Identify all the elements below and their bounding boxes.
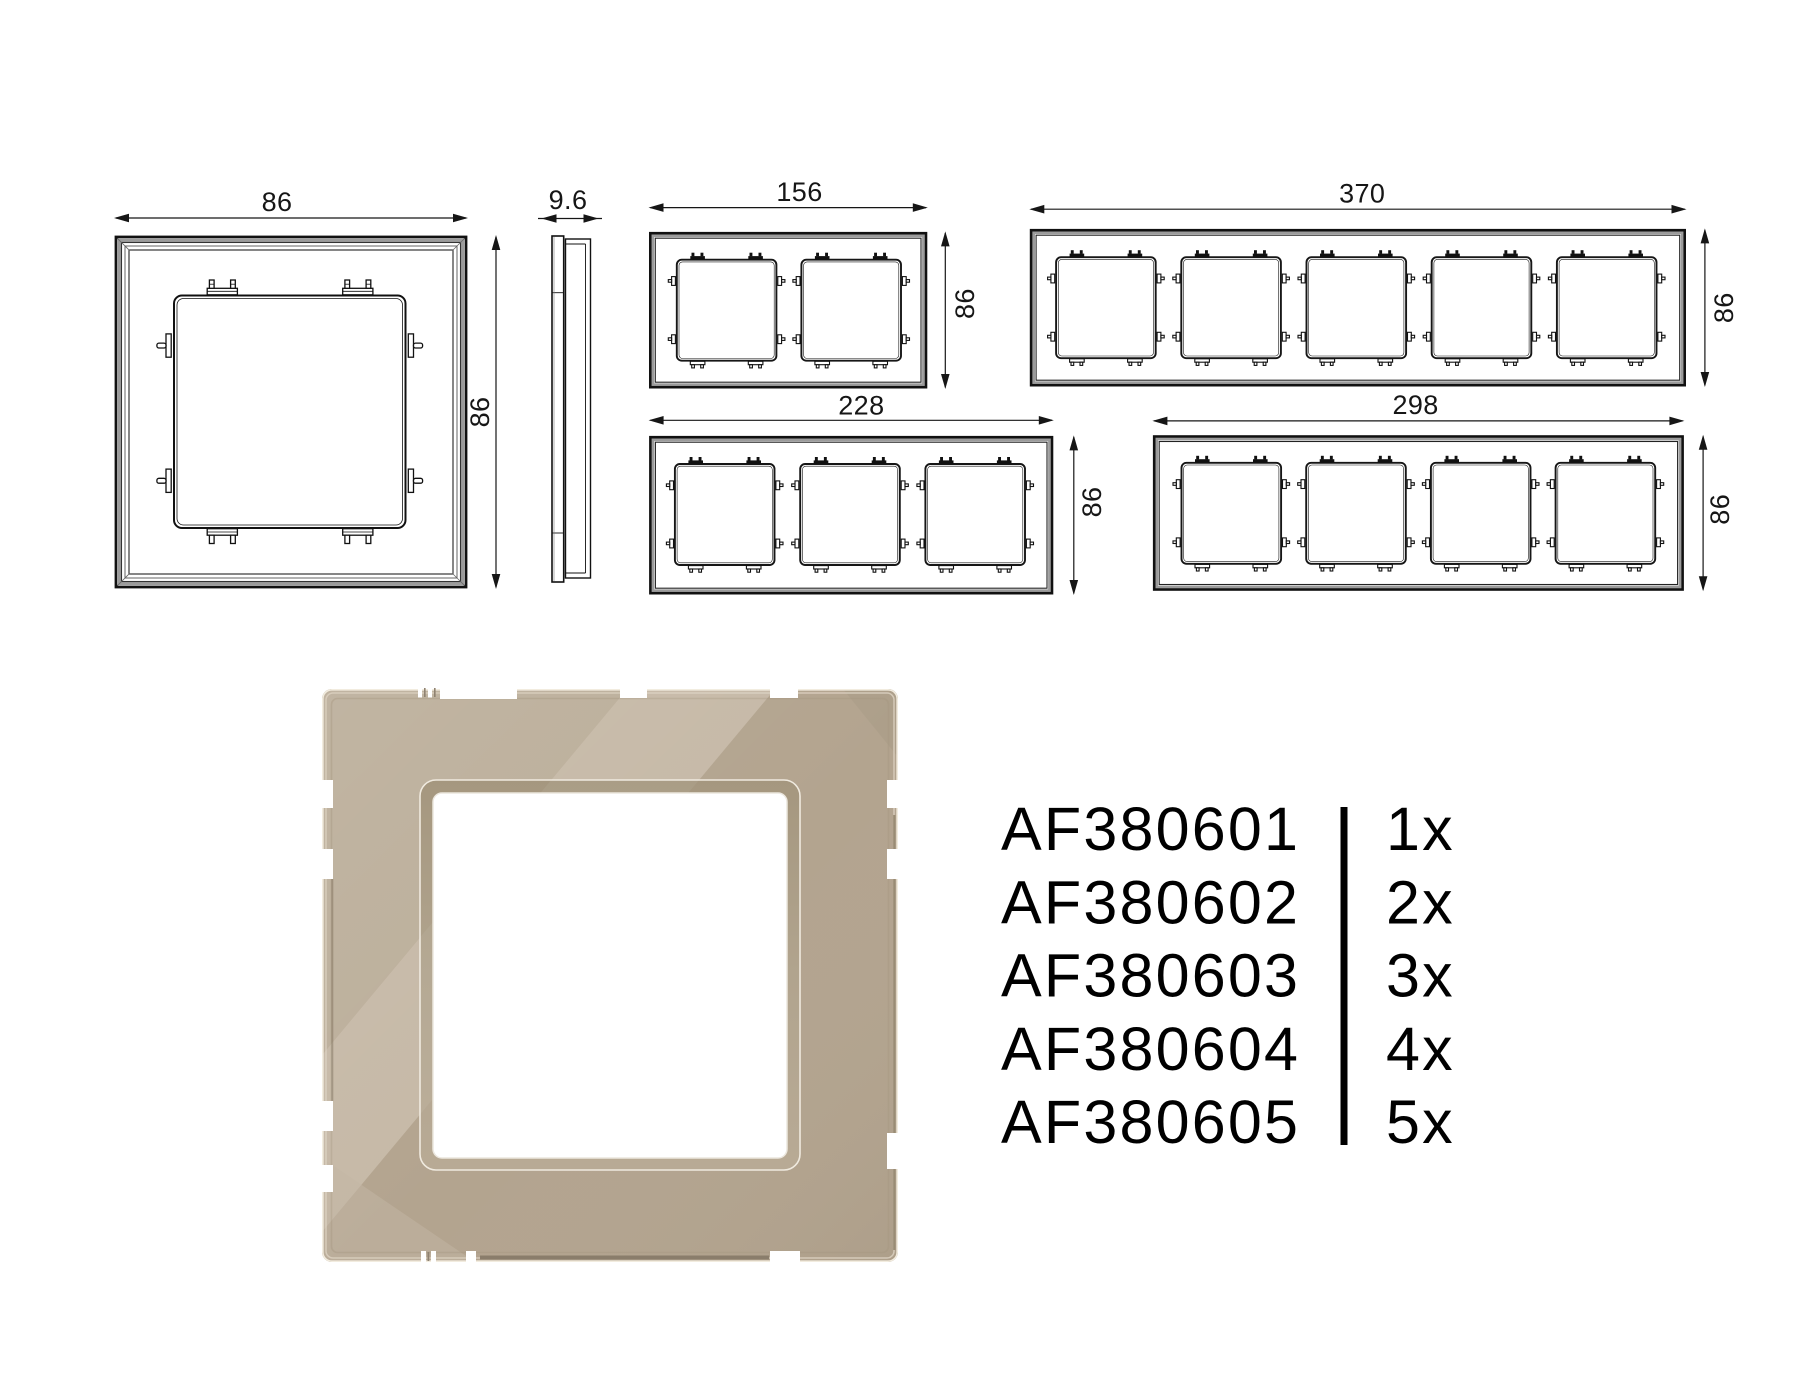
svg-text:86: 86 (1077, 487, 1107, 518)
svg-text:86: 86 (950, 288, 980, 319)
svg-text:AF380605: AF380605 (1001, 1088, 1300, 1156)
svg-text:AF380602: AF380602 (1001, 868, 1300, 936)
svg-text:228: 228 (838, 391, 884, 421)
svg-text:AF380604: AF380604 (1001, 1015, 1300, 1083)
svg-text:AF380603: AF380603 (1001, 942, 1300, 1010)
svg-text:9.6: 9.6 (549, 185, 588, 215)
svg-text:156: 156 (776, 177, 822, 207)
svg-text:3x: 3x (1386, 942, 1455, 1010)
svg-text:298: 298 (1392, 390, 1438, 420)
svg-text:86: 86 (1709, 292, 1739, 323)
svg-text:AF380601: AF380601 (1001, 795, 1300, 863)
svg-text:86: 86 (262, 187, 293, 217)
svg-text:4x: 4x (1386, 1015, 1455, 1083)
svg-text:370: 370 (1339, 179, 1385, 209)
svg-text:5x: 5x (1386, 1088, 1455, 1156)
svg-text:86: 86 (1705, 494, 1735, 525)
svg-text:1x: 1x (1386, 795, 1455, 863)
svg-text:2x: 2x (1386, 868, 1455, 936)
svg-text:86: 86 (465, 397, 495, 428)
